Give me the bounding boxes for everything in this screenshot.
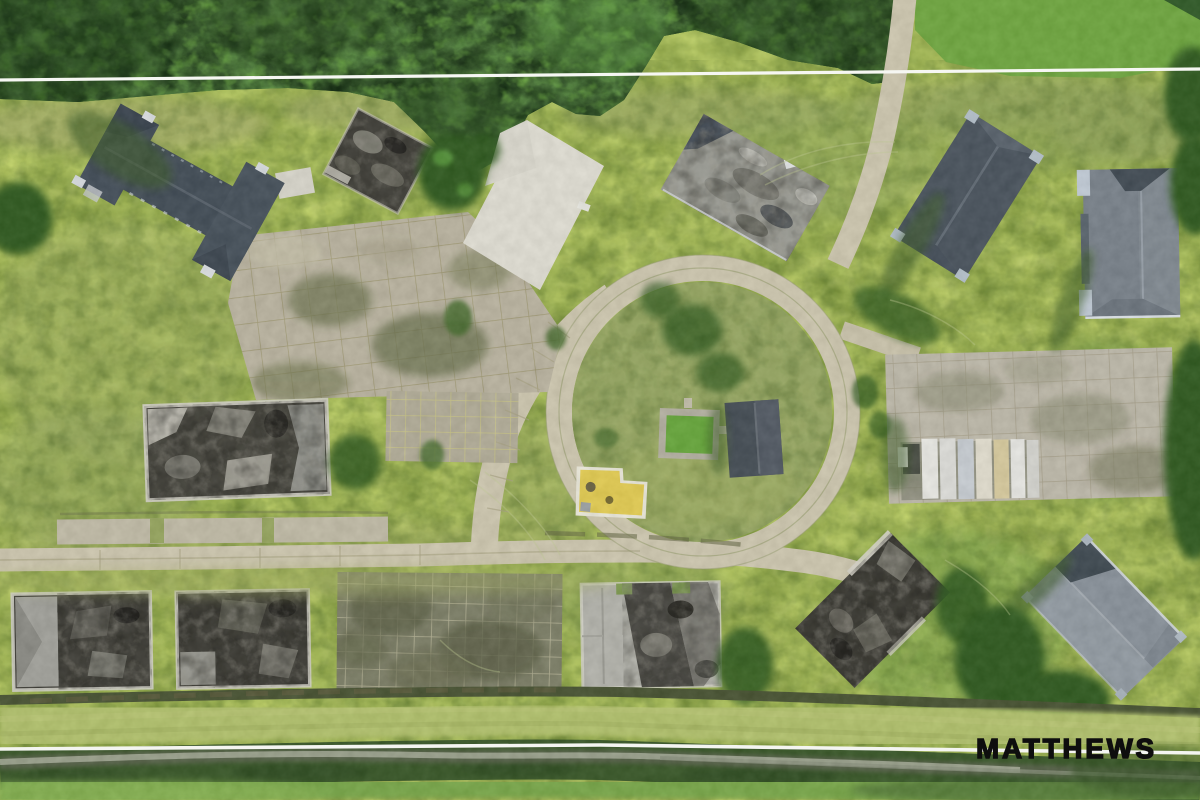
- svg-text:MATTHEWS: MATTHEWS: [976, 733, 1157, 764]
